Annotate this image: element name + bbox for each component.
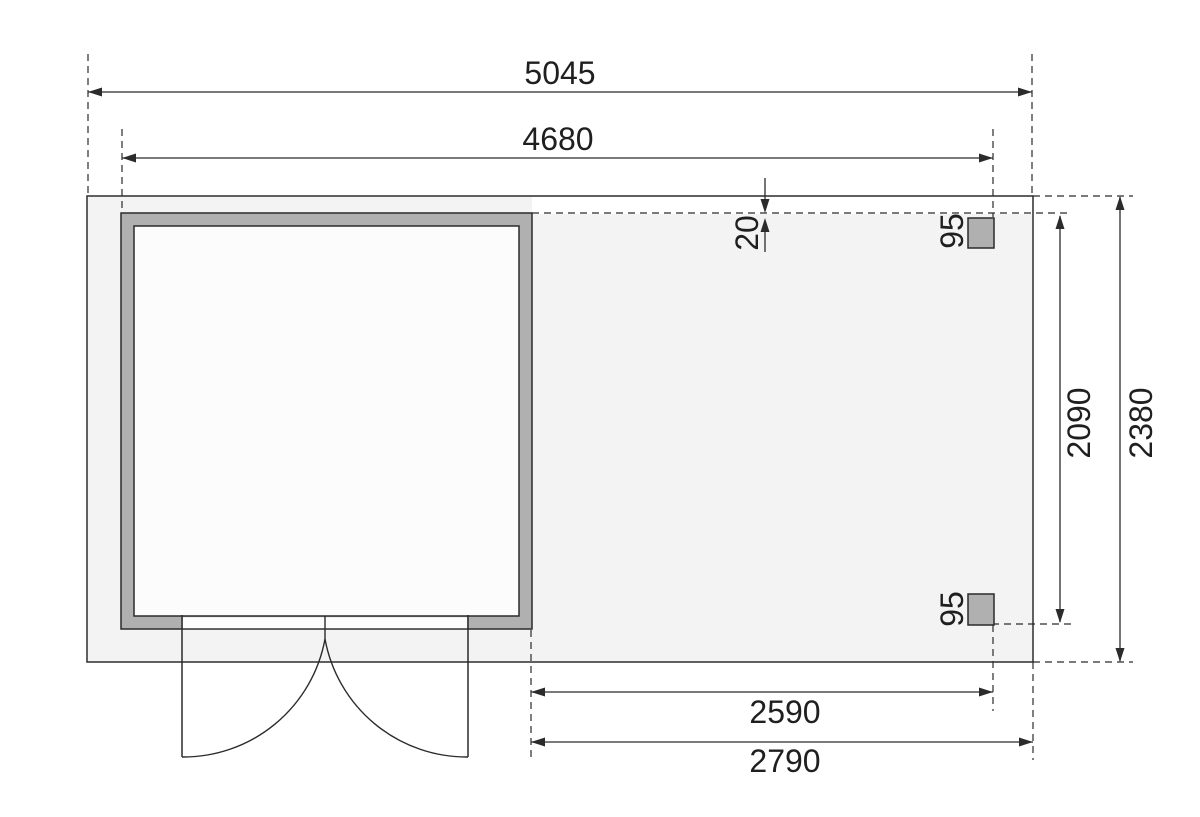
dim-canopy-depth-label: 2090 (1061, 387, 1097, 458)
dim-total-width-label: 5045 (524, 55, 595, 91)
dim-post-size-upper-label: 95 (934, 213, 970, 249)
shed-interior-floor (134, 226, 519, 616)
dim-post-size-upper: 95 (934, 213, 970, 249)
dim-roof-edge-offset-label: 20 (729, 215, 765, 251)
dim-total-depth-label: 2380 (1123, 387, 1159, 458)
canopy-post-upper (968, 218, 994, 248)
drawing-page: 5045 4680 20 2090 238 (0, 0, 1200, 817)
dim-post-size-lower-label: 95 (934, 591, 970, 627)
dim-shed-width-label: 4680 (522, 121, 593, 157)
canopy-post-lower (968, 594, 994, 625)
floor-plan-canvas: 5045 4680 20 2090 238 (0, 0, 1200, 817)
dim-post-size-lower: 95 (934, 591, 970, 627)
dim-post-span-label: 2590 (749, 694, 820, 730)
dim-canopy-width-label: 2790 (749, 743, 820, 779)
